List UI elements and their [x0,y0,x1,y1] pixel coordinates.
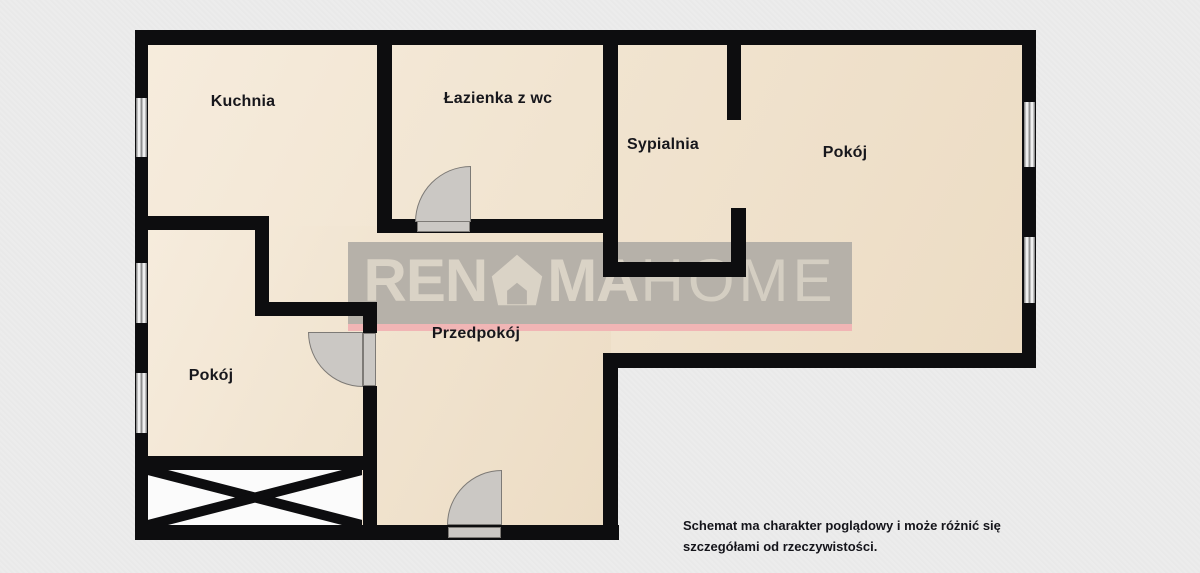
wall-segment [135,525,619,540]
house-icon [490,253,544,307]
wall-segment [603,353,618,540]
watermark: REN MA HOME [348,242,852,324]
watermark-accent-line [348,324,852,331]
wall-segment [135,30,1036,45]
wall-segment [255,216,269,316]
disclaimer-text: Schemat ma charakter poglądowy i może ró… [683,515,1043,557]
window-symbol [136,263,147,323]
window-symbol [136,98,147,157]
disclaimer-line1: Schemat ma charakter poglądowy i może ró… [683,515,1043,536]
wall-segment [377,219,617,233]
wall-segment [603,30,618,277]
room-label-pokoj-left: Pokój [189,367,234,385]
wall-segment [1022,30,1036,368]
wall-segment [255,302,377,316]
room-label-sypialnia: Sypialnia [627,136,699,154]
balcony-x-icon [148,470,362,525]
wall-segment [603,262,746,277]
disclaimer-line2: szczegółami od rzeczywistości. [683,536,1043,557]
wall-segment [603,353,1036,368]
room-label-lazienka: Łazienka z wc [444,90,552,108]
wall-segment [377,30,392,233]
door-leaf [363,333,376,386]
wall-segment [731,208,746,268]
room-label-kuchnia: Kuchnia [211,93,276,111]
window-symbol [1024,237,1035,303]
room-label-pokoj-right: Pokój [823,144,868,162]
door-leaf [417,221,470,232]
window-symbol [1024,102,1035,167]
room-label-przedpokoj: Przedpokój [432,325,520,343]
wall-segment [363,302,377,333]
balcony-symbol [148,470,362,525]
watermark-text: REN MA HOME [364,251,837,311]
window-symbol [136,373,147,433]
door-leaf [448,527,501,538]
floor-plan-canvas: REN MA HOME [0,0,1200,573]
wall-segment [135,216,269,230]
watermark-brand-part2: MA [547,251,638,311]
watermark-brand-part1: REN [364,251,488,311]
wall-segment [727,30,741,120]
wall-segment [135,456,377,470]
